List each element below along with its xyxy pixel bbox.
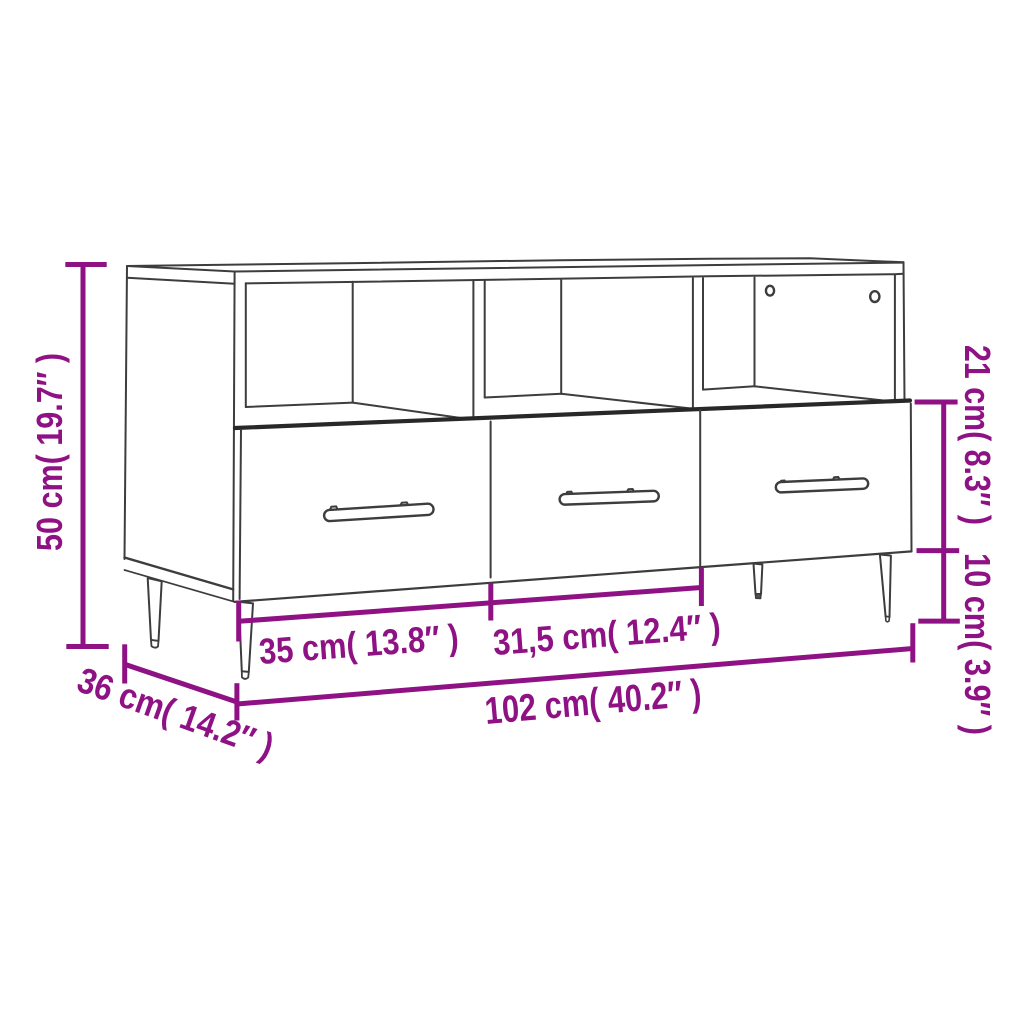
svg-text:10 cm( 3.9″ ): 10 cm( 3.9″ ) <box>957 553 998 735</box>
svg-text:21 cm( 8.3″ ): 21 cm( 8.3″ ) <box>957 345 998 525</box>
svg-text:50 cm( 19.7″ ): 50 cm( 19.7″ ) <box>29 353 70 551</box>
